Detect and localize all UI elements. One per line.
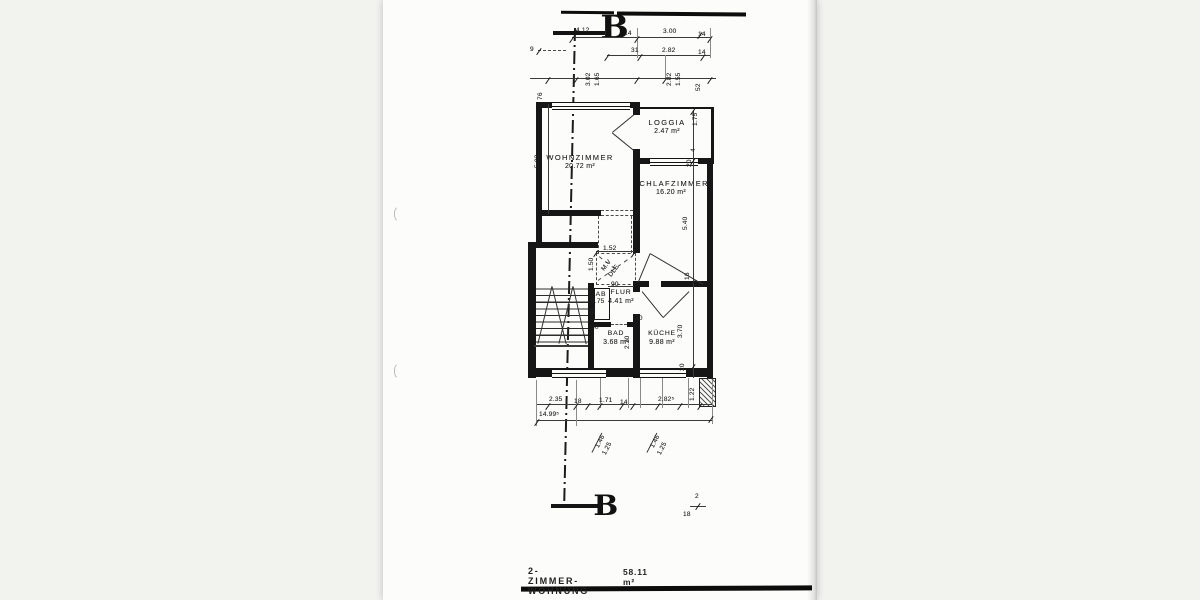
section-marker-b-bottom: B	[593, 489, 618, 522]
floor-plan: B B WOHNZIMMER 20.72 m² LOGGIA 2.47 m² S…	[0, 0, 1200, 600]
dimension-line	[572, 37, 710, 38]
dimension-label: 52	[695, 83, 702, 91]
dashed-opening-line	[611, 324, 627, 325]
apartment-type-label: 2-ZIMMER-WOHNUNG	[528, 566, 589, 596]
wall	[627, 322, 634, 327]
dashed-opening-line	[601, 210, 633, 211]
dimension-label: 1.75	[692, 113, 699, 126]
dimension-label: 14	[620, 399, 628, 406]
extension-line	[710, 28, 711, 58]
door-swing-line	[637, 253, 650, 282]
room-label-loggia: LOGGIA 2.47 m²	[648, 118, 685, 136]
door-swing-line	[663, 291, 690, 318]
dimension-tick	[604, 54, 610, 61]
door-swing-line	[612, 114, 635, 133]
dimension-label: 2.82	[666, 73, 673, 86]
dimension-label: 2.20	[624, 336, 631, 349]
dimension-label: 1.71	[599, 397, 612, 404]
screenshot-stage: B B WOHNZIMMER 20.72 m² LOGGIA 2.47 m² S…	[0, 0, 1200, 600]
dimension-label: 0.75	[591, 298, 604, 305]
room-label-wohnzimmer: WOHNZIMMER 20.72 m²	[546, 153, 613, 171]
dimension-label: 1.65	[594, 73, 601, 86]
dimension-label: 1.50	[588, 258, 595, 271]
dimension-label: 90	[611, 281, 619, 288]
dimension-label: 50	[591, 324, 599, 331]
door-swing-line	[612, 132, 635, 151]
dimension-label: 3.70	[677, 325, 684, 338]
dashed-opening-line	[538, 50, 566, 51]
dimension-line	[548, 104, 549, 214]
section-marker-b-top: B	[600, 8, 628, 46]
dimension-line	[536, 420, 712, 421]
wall	[711, 107, 714, 160]
room-label-flur: FLUR 4.41 m²	[608, 288, 634, 306]
extension-line	[628, 378, 629, 408]
dimension-label: 16	[684, 272, 691, 280]
dimension-label: 1.50	[590, 308, 597, 321]
section-cut-bar-bottom	[551, 504, 599, 508]
door-swing-line	[642, 291, 664, 318]
extension-line	[536, 380, 537, 426]
dimension-label: 18	[574, 398, 582, 405]
dimension-label: 30	[635, 315, 643, 322]
dimension-label: 2	[695, 493, 699, 500]
dimension-label: 76	[537, 92, 544, 100]
room-label-schlafzimmer: SCHLAFZIMMER 16.20 m²	[633, 179, 709, 197]
dimension-label: 1.55	[675, 73, 682, 86]
wall	[638, 107, 714, 109]
dashed-opening-line	[601, 215, 633, 216]
dimension-label: 20	[679, 363, 686, 371]
window	[552, 369, 606, 378]
dimension-line	[534, 345, 588, 347]
dimension-label: 18	[683, 511, 691, 518]
section-line-bb	[563, 28, 576, 509]
dimension-label: 9	[530, 46, 534, 53]
dimension-label: 31	[631, 47, 639, 54]
wall	[536, 210, 601, 216]
wall	[633, 149, 640, 253]
wall	[661, 281, 713, 287]
dimension-label: 20	[686, 159, 693, 167]
dimension-line	[530, 78, 716, 79]
dashed-opening-line	[631, 216, 632, 253]
wall	[536, 102, 542, 248]
extension-line	[640, 378, 641, 408]
room-label-kueche: KÜCHE 9.88 m²	[648, 329, 676, 347]
dimension-label: 14	[698, 31, 706, 38]
dimension-label: 14.99⁵	[539, 411, 559, 418]
dimension-label: 1.22	[689, 388, 696, 401]
dimension-label: 5.40	[682, 217, 689, 230]
total-area-label: 58.11 m²	[623, 567, 648, 587]
wall	[707, 160, 713, 378]
dimension-label: 4.12	[576, 27, 589, 34]
dimension-label: 14	[624, 30, 632, 37]
window	[552, 102, 630, 110]
dimension-label: 2.82	[662, 47, 675, 54]
dimension-label: 2.35	[549, 396, 562, 403]
dashed-opening-line	[598, 216, 599, 253]
dimension-label: 14	[698, 49, 706, 56]
dimension-label: 5.03	[534, 155, 541, 168]
dimension-label: 2.82⁵	[658, 396, 674, 403]
wall	[528, 242, 598, 248]
dimension-label: 3.02	[585, 73, 592, 86]
wall	[528, 242, 536, 378]
dimension-line	[607, 55, 710, 56]
wall	[633, 281, 649, 287]
dimension-label: 3.00	[663, 28, 676, 35]
extension-line	[662, 378, 663, 408]
dimension-label: 4	[690, 148, 697, 152]
dimension-label: 1.52	[603, 245, 616, 252]
